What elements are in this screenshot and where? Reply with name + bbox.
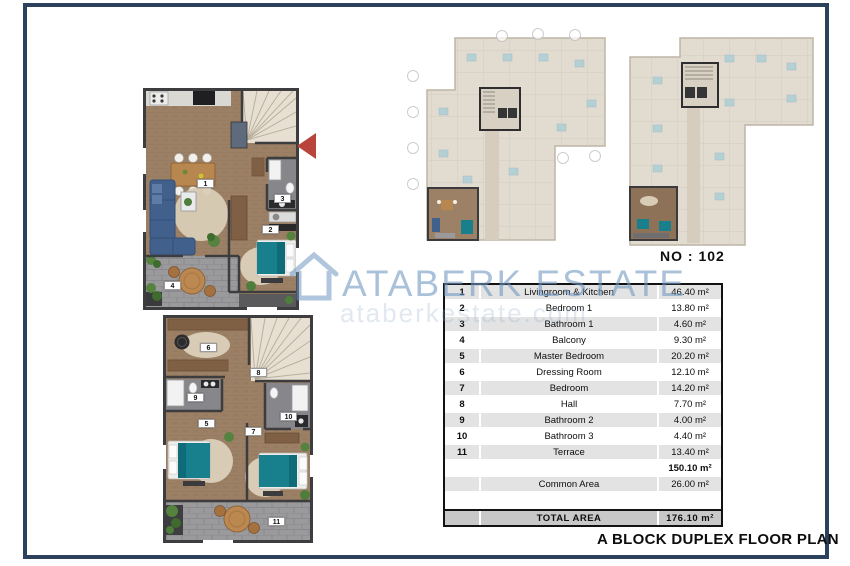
room-label-bedroom: 7 xyxy=(245,427,262,436)
area-table-row xyxy=(445,493,721,507)
area-table-row: 8Hall7.70 m² xyxy=(445,397,721,411)
master-bed xyxy=(168,441,210,486)
area-table-row: 9Bathroom 24.00 m² xyxy=(445,413,721,427)
key-plan-right-unit-highlight xyxy=(630,187,677,240)
area-table-row: Common Area26.00 m² xyxy=(445,477,721,491)
room-label-master-bedroom: 5 xyxy=(198,419,215,428)
area-table-row: 1Livingroom & Kitchen46.40 m² xyxy=(445,285,721,299)
unit-number: NO : 102 xyxy=(660,248,725,264)
room-label-bathroom1: 3 xyxy=(274,194,291,203)
key-plan-left xyxy=(405,28,617,246)
entrance-arrow-icon xyxy=(297,133,316,159)
room-label-terrace: 11 xyxy=(268,517,285,526)
area-table-total-row: TOTAL AREA176.10 m² xyxy=(445,509,721,525)
area-table: 1Livingroom & Kitchen46.40 m² 2Bedroom 1… xyxy=(443,283,723,527)
room-label-bathroom2: 9 xyxy=(187,393,204,402)
room-label-bedroom1: 2 xyxy=(262,225,279,234)
key-plan-right xyxy=(625,33,821,248)
area-table-row: 3Bathroom 14.60 m² xyxy=(445,317,721,331)
key-plan-right-drawing xyxy=(625,33,821,248)
duplex-upper-floor-plan: 5 6 7 8 9 10 11 xyxy=(163,315,313,543)
room-label-balcony: 4 xyxy=(164,281,181,290)
room-label-hall: 8 xyxy=(250,368,267,377)
room-label-livingroom: 1 xyxy=(197,179,214,188)
sheet-caption: A BLOCK DUPLEX FLOOR PLAN xyxy=(597,531,839,548)
key-plan-left-drawing xyxy=(405,28,617,246)
area-table-subtotal-row: 150.10 m² xyxy=(445,461,721,475)
area-table-row: 4Balcony9.30 m² xyxy=(445,333,721,347)
key-plan-left-core xyxy=(480,88,520,130)
floor-plan-sheet: 1 2 3 4 xyxy=(0,0,850,566)
duplex-lower-floor-plan: 1 2 3 4 xyxy=(143,88,299,310)
key-plan-right-core xyxy=(682,63,718,107)
key-plan-left-unit-highlight xyxy=(428,188,478,240)
area-table-row: 5Master Bedroom20.20 m² xyxy=(445,349,721,363)
area-table-row: 11Terrace13.40 m² xyxy=(445,445,721,459)
area-table-row: 6Dressing Room12.10 m² xyxy=(445,365,721,379)
area-table-row: 10Bathroom 34.40 m² xyxy=(445,429,721,443)
area-table-row: 2Bedroom 113.80 m² xyxy=(445,301,721,315)
room-label-dressing-room: 6 xyxy=(200,343,217,352)
upper-floor-drawing xyxy=(163,315,313,543)
room-label-bathroom3: 10 xyxy=(280,412,297,421)
area-table-row: 7Bedroom14.20 m² xyxy=(445,381,721,395)
